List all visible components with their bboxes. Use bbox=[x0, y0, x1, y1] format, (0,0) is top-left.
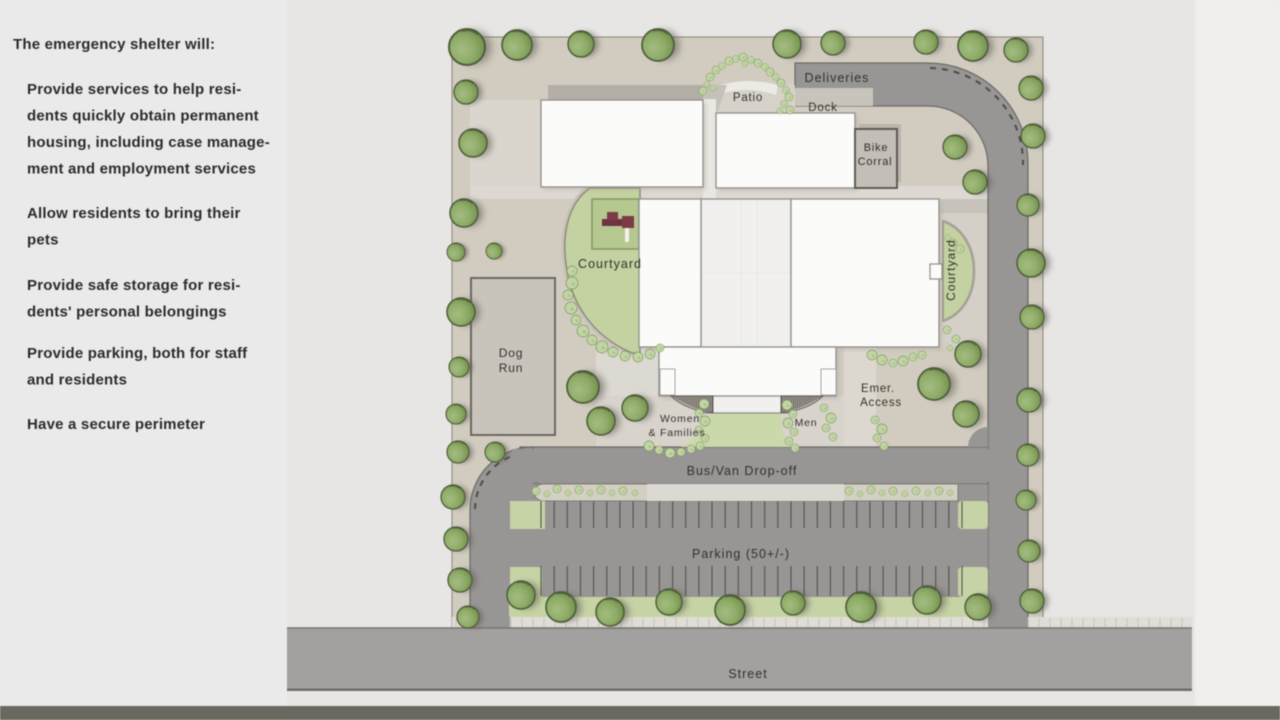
svg-text:Provide parking, both for staf: Provide parking, both for staff bbox=[27, 345, 248, 362]
svg-text:dents quickly obtain permanent: dents quickly obtain permanent bbox=[27, 108, 259, 125]
svg-text:Parking (50+/-): Parking (50+/-) bbox=[692, 547, 790, 561]
svg-text:Access: Access bbox=[860, 397, 902, 409]
svg-text:Provide safe storage for resi-: Provide safe storage for resi- bbox=[27, 277, 241, 294]
svg-text:Dock: Dock bbox=[808, 102, 837, 114]
svg-text:Men: Men bbox=[795, 417, 818, 429]
svg-text:pets: pets bbox=[27, 232, 59, 249]
svg-text:and residents: and residents bbox=[27, 372, 127, 389]
svg-text:Women: Women bbox=[660, 413, 700, 425]
svg-text:Courtyard: Courtyard bbox=[944, 239, 958, 301]
svg-text:Provide services to help resi-: Provide services to help resi- bbox=[27, 81, 241, 98]
svg-text:Run: Run bbox=[499, 361, 523, 375]
svg-text:Deliveries: Deliveries bbox=[805, 71, 870, 85]
svg-text:ment and employment services: ment and employment services bbox=[27, 161, 256, 178]
svg-text:Bus/Van Drop-off: Bus/Van Drop-off bbox=[687, 464, 798, 478]
svg-text:housing, including case manage: housing, including case manage- bbox=[27, 134, 270, 151]
svg-text:Emer.: Emer. bbox=[861, 383, 895, 395]
svg-text:Courtyard: Courtyard bbox=[578, 257, 642, 271]
svg-text:Patio: Patio bbox=[733, 92, 763, 104]
svg-text:dents' personal belongings: dents' personal belongings bbox=[27, 304, 227, 321]
svg-text:The emergency shelter will:: The emergency shelter will: bbox=[13, 36, 215, 53]
svg-text:Allow residents to bring their: Allow residents to bring their bbox=[27, 205, 241, 222]
svg-text:Bike: Bike bbox=[864, 142, 889, 154]
svg-text:Corral: Corral bbox=[858, 156, 893, 168]
svg-text:Have a secure perimeter: Have a secure perimeter bbox=[27, 416, 205, 433]
svg-text:& Families: & Families bbox=[648, 427, 705, 439]
svg-text:Street: Street bbox=[728, 667, 767, 681]
svg-text:Dog: Dog bbox=[499, 346, 523, 360]
